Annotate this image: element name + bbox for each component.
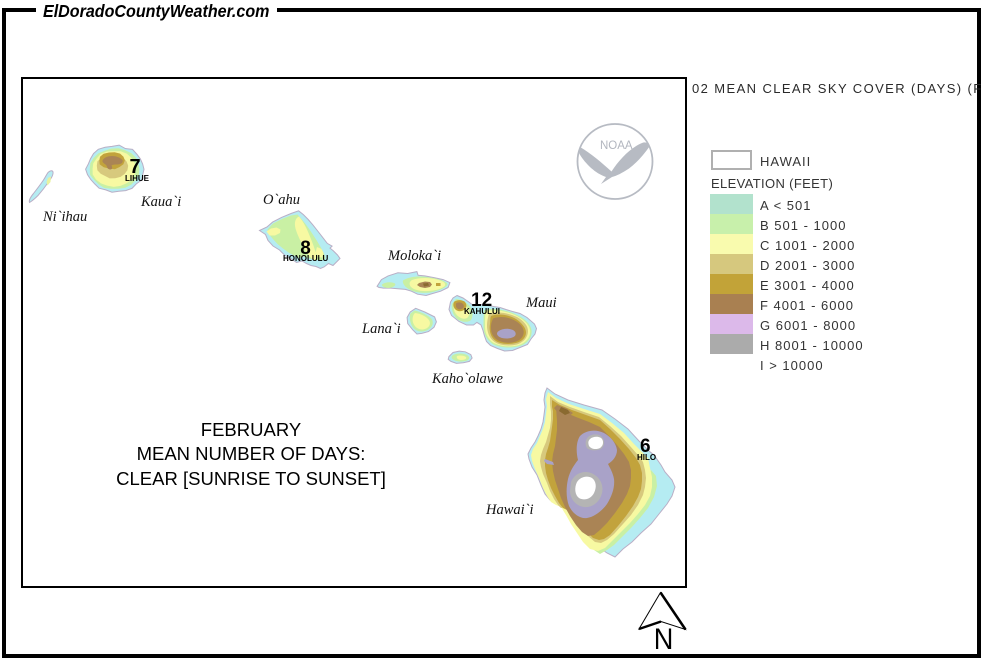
svg-text:N: N xyxy=(654,623,674,656)
svg-text:NOAA: NOAA xyxy=(600,140,633,152)
